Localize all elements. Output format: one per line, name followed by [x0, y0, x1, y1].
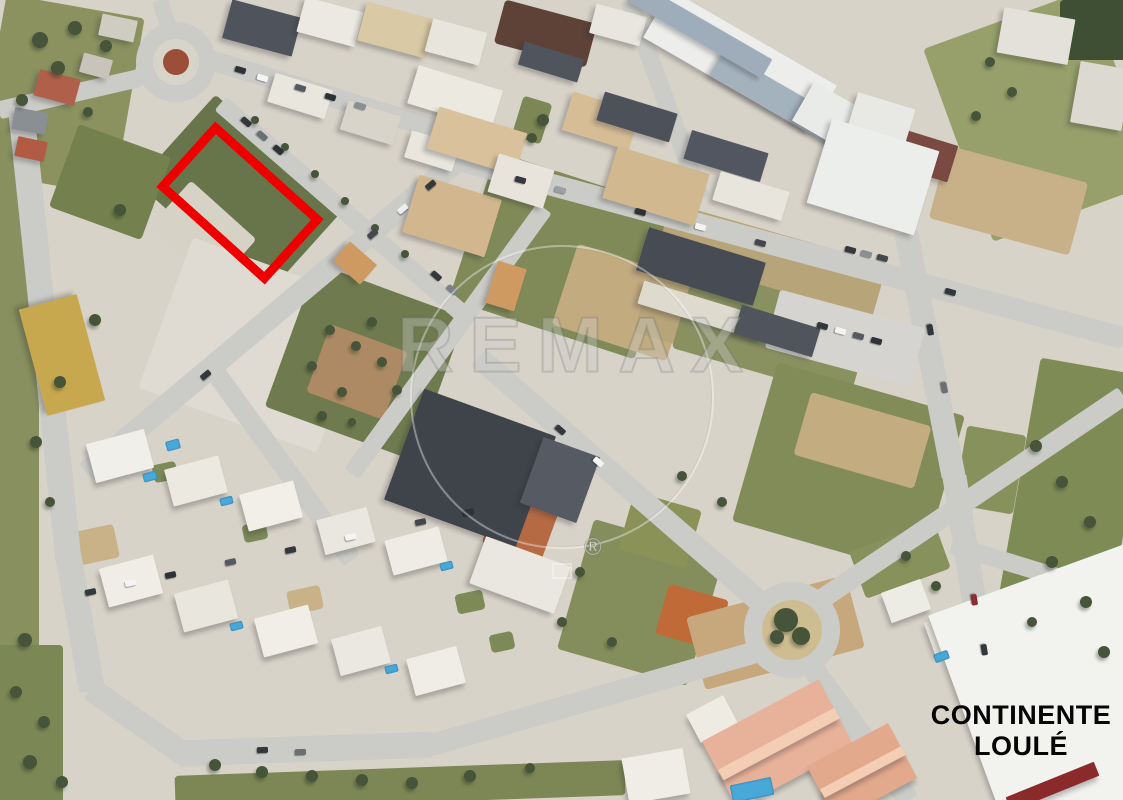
tree	[32, 32, 48, 48]
tree	[341, 197, 349, 205]
tree	[54, 376, 66, 388]
tree	[307, 361, 317, 371]
tree	[770, 630, 784, 644]
tree	[1098, 646, 1110, 658]
tree	[23, 755, 37, 769]
tree	[356, 774, 368, 786]
tree	[38, 716, 50, 728]
car	[224, 558, 236, 566]
terrain-patch	[488, 631, 515, 654]
building	[1070, 61, 1123, 131]
tree	[256, 766, 268, 778]
tree	[114, 204, 126, 216]
tree	[525, 763, 535, 773]
tree	[18, 633, 32, 647]
building	[239, 480, 303, 531]
tree	[306, 770, 318, 782]
tree	[209, 759, 221, 771]
tree	[527, 133, 537, 143]
tree	[1084, 516, 1096, 528]
swimming-pool	[439, 560, 454, 571]
tree	[971, 111, 981, 121]
car	[414, 518, 426, 526]
swimming-pool	[219, 495, 234, 506]
tree	[931, 581, 941, 591]
tree	[1027, 617, 1037, 627]
tree	[325, 325, 335, 335]
tree	[1007, 87, 1017, 97]
tree	[1046, 556, 1058, 568]
swimming-pool	[229, 620, 244, 631]
car	[256, 747, 267, 753]
tree	[575, 567, 585, 577]
tree	[537, 114, 549, 126]
tree	[317, 411, 327, 421]
terrain-patch	[175, 760, 626, 800]
tree	[464, 770, 476, 782]
car	[294, 749, 305, 755]
swimming-pool	[165, 438, 181, 451]
car	[84, 588, 96, 596]
tree	[45, 497, 55, 507]
car	[284, 546, 296, 554]
tree	[792, 627, 810, 645]
tree	[901, 551, 911, 561]
tree	[30, 436, 42, 448]
roundabout	[163, 49, 189, 75]
building	[384, 526, 447, 575]
building	[425, 18, 488, 65]
tree	[1056, 476, 1068, 488]
street	[84, 679, 193, 765]
location-label-line2: LOULÉ	[922, 731, 1120, 762]
building	[331, 626, 391, 676]
tree	[985, 57, 995, 67]
tree	[717, 497, 727, 507]
location-label: CONTINENTE LOULÉ	[922, 700, 1120, 762]
car	[970, 594, 977, 606]
building	[296, 0, 363, 47]
tree	[348, 418, 356, 426]
tree	[100, 40, 112, 52]
tree	[51, 61, 65, 75]
tree	[401, 250, 409, 258]
tree	[16, 94, 28, 106]
tree	[367, 317, 377, 327]
tree	[337, 387, 347, 397]
car	[164, 571, 176, 579]
terrain-patch	[454, 589, 486, 614]
location-label-line1: CONTINENTE	[922, 700, 1120, 731]
tree	[10, 686, 22, 698]
building	[222, 0, 302, 57]
tree	[351, 341, 361, 351]
tree	[377, 357, 387, 367]
tree	[406, 777, 418, 789]
tree	[677, 471, 687, 481]
tree	[1030, 440, 1042, 452]
tree	[56, 776, 68, 788]
tree	[1080, 596, 1092, 608]
tree	[557, 617, 567, 627]
building	[357, 2, 435, 59]
building	[406, 646, 466, 696]
building	[254, 604, 318, 657]
tree	[83, 107, 93, 117]
tree	[392, 385, 402, 395]
tree	[68, 21, 82, 35]
tree	[89, 314, 101, 326]
building	[621, 748, 690, 800]
swimming-pool	[384, 663, 399, 674]
tree	[607, 637, 617, 647]
tree	[311, 170, 319, 178]
building	[267, 73, 333, 119]
terrain-patch	[0, 645, 63, 800]
car	[980, 644, 987, 656]
satellite-map: REMAX ® CONTINENTE LOULÉ	[0, 0, 1123, 800]
